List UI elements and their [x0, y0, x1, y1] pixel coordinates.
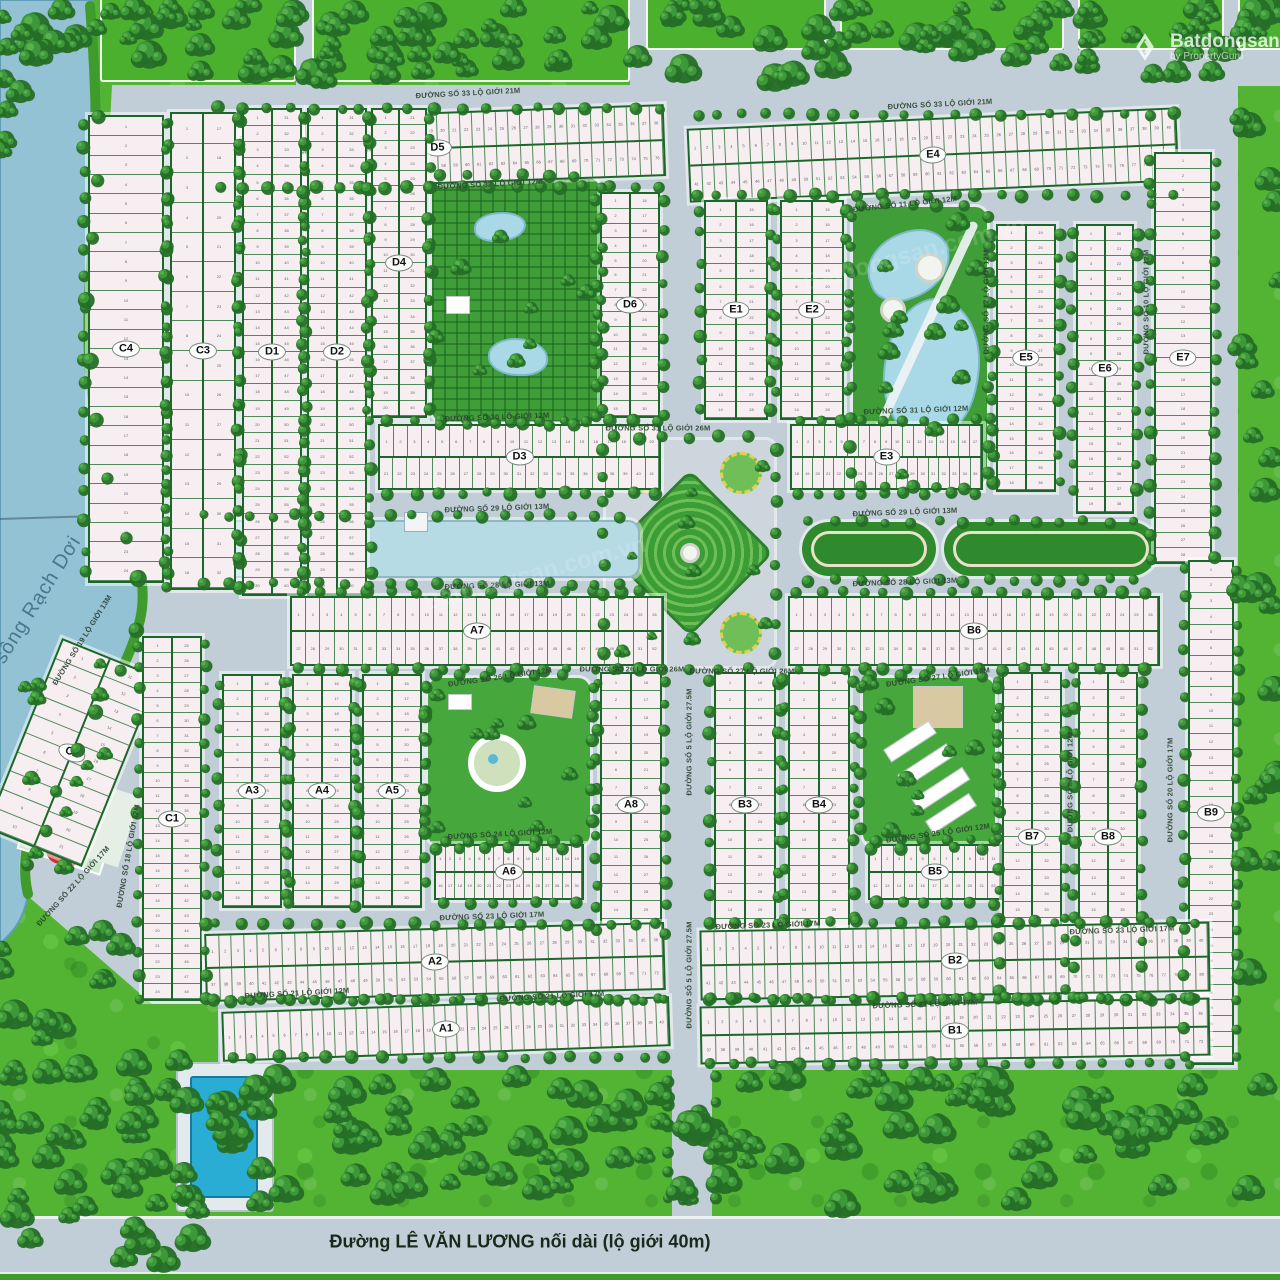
brand-diamond-icon: [1128, 30, 1162, 64]
street-label: ĐƯỜNG SỐ 20 LỘ GIỚI 17M: [1166, 738, 1175, 843]
street-label: ĐƯỜNG SỐ 33 LỘ GIỚI 21M: [415, 86, 520, 100]
street-label: ĐƯỜNG SỐ 23 LỘ GIỚI 17M: [439, 910, 544, 923]
block-label-D1: D1: [258, 344, 286, 361]
block-label-A3: A3: [238, 783, 266, 800]
block-label-B6: B6: [960, 623, 988, 640]
street-label: ĐƯỜNG SỐ 30 LỘ GIỚI 12M: [444, 411, 549, 424]
brand-watermark: Batdongsan by PropertyGuru: [1128, 30, 1280, 64]
streets-layer: ĐƯỜNG SỐ 33 LỘ GIỚI 21MĐƯỜNG SỐ 33 LỘ GI…: [0, 0, 1280, 1280]
street-label: ĐƯỜNG SỐ 26 LỘ GIỚI 12M: [447, 665, 552, 689]
street-label: ĐƯỜNG SỐ 23 LỘ GIỚI 17M: [1069, 924, 1174, 937]
street-label: ĐƯỜNG SỐ 22 LỘ GIỚI 17M: [35, 844, 112, 928]
block-label-B7: B7: [1018, 829, 1046, 846]
street-label: ĐƯỜNG SỐ 29 LỘ GIỚI 13M: [852, 506, 957, 519]
street-label: ĐƯỜNG SỐ 5 LỘ GIỚI 27.5M: [685, 921, 694, 1028]
brand-byline: by PropertyGuru: [1170, 51, 1280, 62]
street-label: ĐƯỜNG SỐ 25 LỘ GIỚI 12M: [885, 821, 990, 845]
street-label: ĐƯỜNG SỐ 19 LỘ GIỚI 13M: [50, 593, 113, 687]
street-label: ĐƯỜNG SỐ 28 LỘ GIỚI 13M: [852, 576, 957, 589]
street-label: ĐƯỜNG SỐ 27 LỘ GIỚI 12M: [885, 665, 990, 689]
street-label: ĐƯỜNG SỐ 29 LỘ GIỚI 13M: [444, 502, 549, 515]
block-label-D3: D3: [505, 449, 533, 466]
block-label-B9: B9: [1197, 804, 1225, 821]
street-label: ĐƯỜNG SỐ 21 LỘ GIỚI 12M: [244, 986, 349, 1000]
block-label-C1: C1: [158, 810, 186, 827]
block-label-D4: D4: [385, 255, 413, 272]
street-label: ĐƯỜNG SỐ 8 LỘ GIỚI 12M: [1066, 732, 1075, 833]
street-label: ĐƯỜNG SỐ 33 LỘ GIỚI 21M: [887, 97, 992, 111]
block-label-D6: D6: [616, 297, 644, 314]
block-label-A7: A7: [463, 623, 491, 640]
street-label: ĐƯỜNG SỐ 5 LỘ GIỚI 27.5M: [685, 688, 694, 795]
street-label: ĐƯỜNG SỐ 11 LỘ GIỚI 12M: [853, 194, 958, 214]
block-label-B5: B5: [921, 864, 949, 881]
street-label: ĐƯỜNG SỐ 31 LỘ GIỚI 26M: [606, 424, 711, 433]
street-label: ĐƯỜNG SỐ 32 LỘ GIỚI 12M: [437, 177, 542, 191]
street-label: ĐƯỜNG SỐ 23 LỘ GIỚI 17M: [715, 919, 820, 932]
site-plan-map: Đường LÊ VĂN LƯƠNG nối dài (lộ giới 40m)…: [0, 0, 1280, 1280]
street-label: ĐƯỜNG SỐ 21 LỘ GIỚI 17M: [499, 989, 604, 1003]
street-label: ĐƯỜNG SỐ 24 LỘ GIỚI 12M: [447, 827, 552, 841]
block-label-B8: B8: [1094, 829, 1122, 846]
block-label-A5: A5: [378, 783, 406, 800]
block-label-B3: B3: [731, 797, 759, 814]
block-label-B4: B4: [805, 797, 833, 814]
street-label: ĐƯỜNG SỐ 12 LỘ GIỚI 12M: [982, 250, 991, 355]
street-label: ĐƯỜNG SỐ 21 LỘ GIỚI 17M: [872, 998, 977, 1011]
street-label: ĐƯỜNG SỐ 18 LỘ GIỚI 12M: [114, 804, 141, 909]
brand-name: Batdongsan: [1170, 32, 1280, 52]
block-label-D2: D2: [323, 344, 351, 361]
block-label-C4: C4: [112, 341, 140, 358]
street-label: ĐƯỜNG SỐ 26 LỘ GIỚI 26M: [580, 665, 685, 674]
street-label: ĐƯỜNG SỐ 10 LỘ GIỚI 12M: [1142, 250, 1151, 355]
block-label-A4: A4: [308, 783, 336, 800]
block-label-C3: C3: [189, 343, 217, 360]
street-label: ĐƯỜNG SỐ 31 LỘ GIỚI 12M: [863, 404, 968, 417]
block-label-A6: A6: [495, 864, 523, 881]
street-label: ĐƯỜNG SỐ 27 LỘ GIỚI 26M: [690, 667, 795, 676]
block-label-A8: A8: [617, 797, 645, 814]
